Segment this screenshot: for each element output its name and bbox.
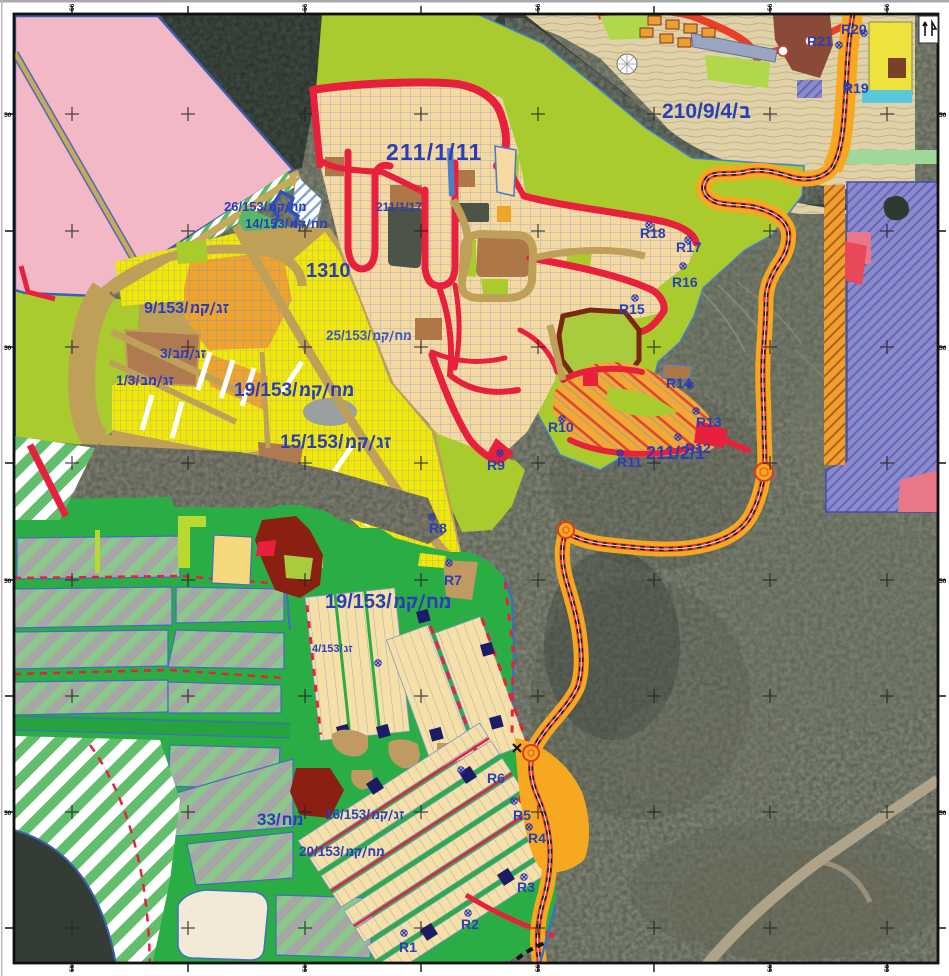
svg-text:R5: R5 <box>513 807 531 823</box>
svg-text:R21: R21 <box>807 33 833 49</box>
svg-text:9/153/: 9/153/ <box>144 300 189 317</box>
svg-text:25/153/: 25/153/ <box>326 328 371 343</box>
svg-text:16/153/: 16/153/ <box>325 807 370 822</box>
svg-text:56: 56 <box>302 964 309 972</box>
svg-text:56: 56 <box>69 3 76 11</box>
svg-text:50: 50 <box>4 810 12 817</box>
svg-text:R16: R16 <box>672 274 698 290</box>
svg-text:56: 56 <box>535 3 542 11</box>
svg-text:50: 50 <box>939 112 947 119</box>
svg-text:50: 50 <box>4 112 12 119</box>
svg-text:R13: R13 <box>696 414 722 430</box>
svg-text:19/153/: 19/153/ <box>234 380 298 401</box>
svg-text:50: 50 <box>4 578 12 585</box>
svg-text:R3: R3 <box>517 879 535 895</box>
svg-text:20/153/: 20/153/ <box>299 844 344 859</box>
svg-text:56: 56 <box>302 3 309 11</box>
svg-text:R10: R10 <box>548 419 574 435</box>
svg-text:R15: R15 <box>619 301 645 317</box>
svg-text:1310: 1310 <box>306 260 351 282</box>
svg-text:3/: 3/ <box>160 345 172 361</box>
svg-text:211/1/11: 211/1/11 <box>386 139 483 165</box>
svg-text:R1: R1 <box>399 939 417 955</box>
svg-text:56: 56 <box>884 964 891 972</box>
svg-text:56: 56 <box>69 964 76 972</box>
svg-text:50: 50 <box>939 345 947 352</box>
svg-text:R9: R9 <box>487 457 505 473</box>
svg-text:56: 56 <box>535 964 542 972</box>
svg-text:56: 56 <box>767 964 774 972</box>
svg-text:50: 50 <box>4 345 12 352</box>
svg-text:19/153/: 19/153/ <box>325 591 392 613</box>
svg-text:50: 50 <box>939 810 947 817</box>
svg-text:26/153/: 26/153/ <box>224 199 268 214</box>
svg-text:33/: 33/ <box>257 810 281 829</box>
svg-text:211/1/17: 211/1/17 <box>376 200 422 214</box>
svg-text:R7: R7 <box>444 572 462 588</box>
svg-text:R8: R8 <box>429 520 447 536</box>
svg-text:56: 56 <box>884 3 891 11</box>
svg-text:R2: R2 <box>461 916 479 932</box>
svg-text:R4: R4 <box>528 830 546 846</box>
svg-text:14/153/: 14/153/ <box>245 216 289 231</box>
svg-text:R6: R6 <box>487 770 505 786</box>
svg-text:1/3/: 1/3/ <box>116 372 139 388</box>
svg-text:50: 50 <box>939 578 947 585</box>
svg-text:210/9/4/: 210/9/4/ <box>662 100 738 123</box>
svg-text:R12: R12 <box>685 440 711 456</box>
svg-text:R18: R18 <box>640 225 666 241</box>
svg-text:56: 56 <box>767 3 774 11</box>
svg-text:15/153/: 15/153/ <box>280 432 344 453</box>
svg-text:4/153/: 4/153/ <box>312 643 343 655</box>
